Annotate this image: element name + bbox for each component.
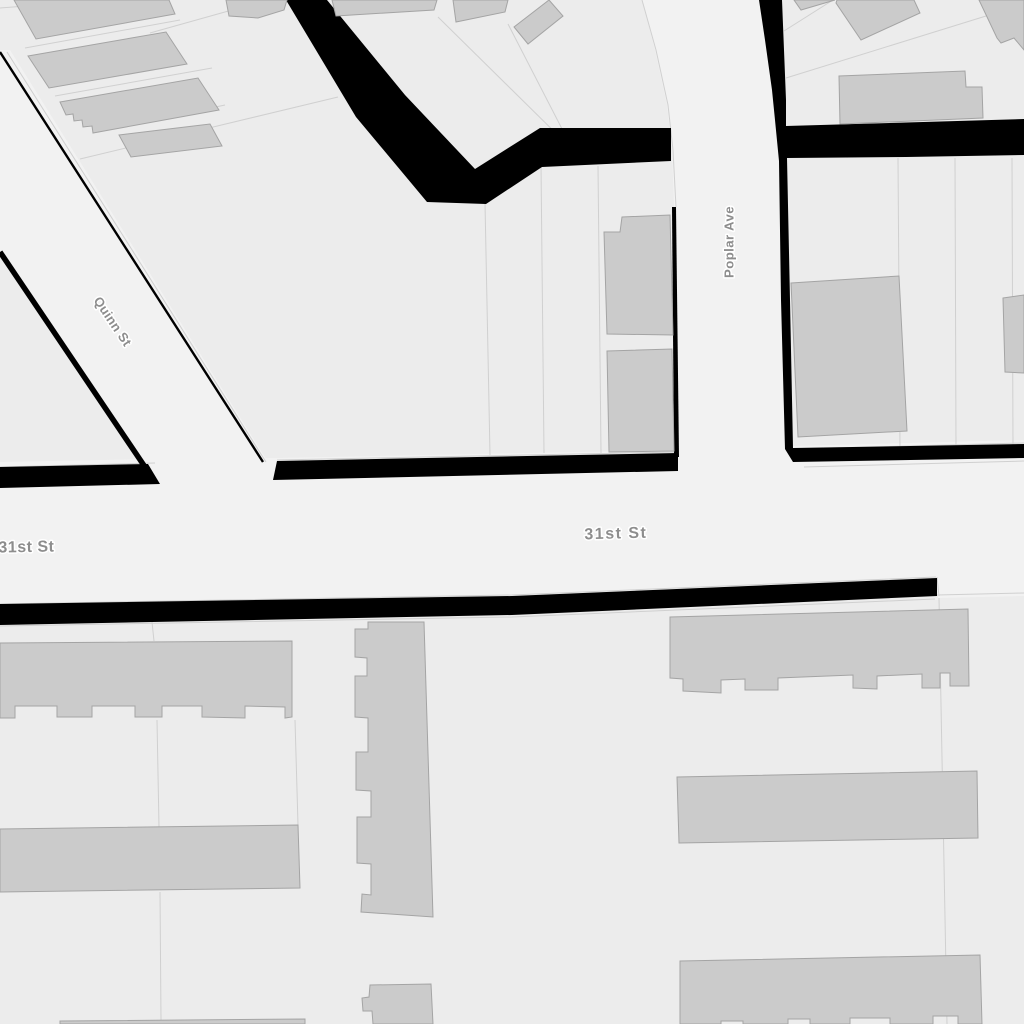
svg-text:31st St: 31st St xyxy=(584,525,647,544)
svg-text:Poplar Ave: Poplar Ave xyxy=(722,206,737,278)
svg-text:31st St: 31st St xyxy=(0,539,55,557)
